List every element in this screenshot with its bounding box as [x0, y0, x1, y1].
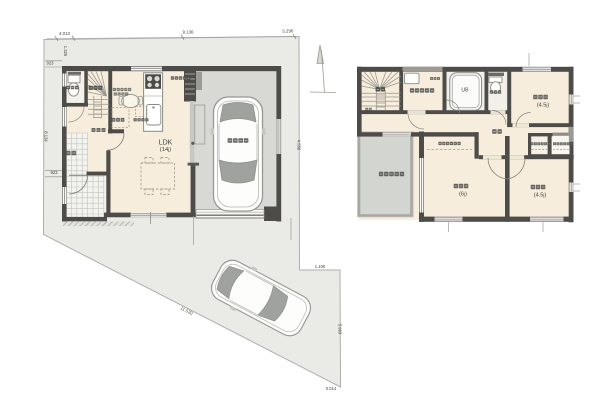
- svg-text:LDK: LDK: [159, 140, 173, 147]
- svg-text:5.963: 5.963: [338, 324, 343, 335]
- svg-text:1.100: 1.100: [315, 264, 326, 269]
- svg-text:4.013: 4.013: [59, 31, 71, 36]
- svg-text:923: 923: [47, 61, 55, 66]
- svg-text:(14j): (14j): [160, 147, 171, 153]
- svg-text:9.136: 9.136: [183, 30, 195, 35]
- svg-text:4.550: 4.550: [297, 140, 302, 151]
- svg-text:8.134: 8.134: [44, 131, 49, 142]
- svg-text:1.325: 1.325: [63, 46, 68, 57]
- svg-text:5.296: 5.296: [282, 28, 294, 34]
- svg-text:(4.5j): (4.5j): [534, 193, 547, 199]
- svg-text:(6j): (6j): [459, 192, 467, 198]
- svg-text:(4.5j): (4.5j): [537, 103, 550, 109]
- svg-text:0.014: 0.014: [326, 386, 337, 391]
- svg-text:UB: UB: [461, 88, 469, 94]
- svg-text:923: 923: [51, 170, 59, 175]
